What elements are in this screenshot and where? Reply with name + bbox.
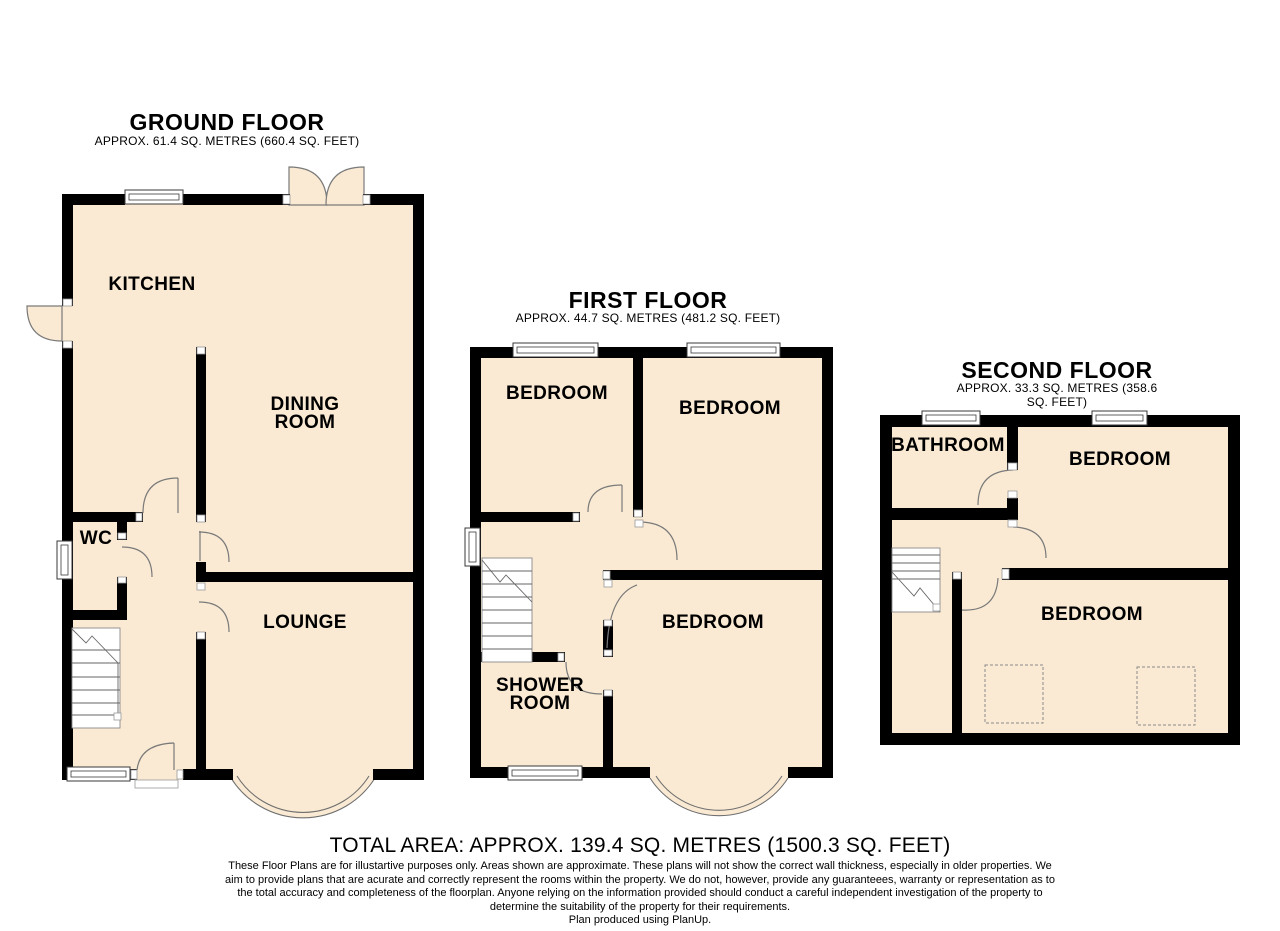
room-label-bedroom-4: BEDROOM xyxy=(1069,451,1171,469)
credit-text: Plan produced using PlanUp. xyxy=(140,914,1140,928)
disclaimer-line-3: the total accuracy and completeness of t… xyxy=(140,887,1140,901)
room-label-wc: WC xyxy=(80,530,112,548)
room-label-bathroom: BATHROOM xyxy=(891,437,1005,455)
room-label-kitchen: KITCHEN xyxy=(108,276,195,294)
room-label-dining-room: DINING ROOM xyxy=(271,396,340,432)
room-label-bedroom-1: BEDROOM xyxy=(506,385,608,403)
room-label-lounge: LOUNGE xyxy=(263,614,347,632)
room-label-bedroom-2: BEDROOM xyxy=(679,400,781,418)
disclaimer-line-2: aim to provide plans that are acurate an… xyxy=(140,874,1140,888)
disclaimer-line-1: These Floor Plans are for illustartive p… xyxy=(140,860,1140,874)
disclaimer-text: These Floor Plans are for illustartive p… xyxy=(140,860,1140,928)
first-floor-title: FIRST FLOOR xyxy=(569,287,728,314)
disclaimer-line-4: determine the suitability of the propert… xyxy=(140,901,1140,915)
ground-floor-title: GROUND FLOOR xyxy=(129,109,324,136)
second-floor-title: SECOND FLOOR xyxy=(961,357,1152,384)
room-label-bedroom-3: BEDROOM xyxy=(662,614,764,632)
ground-floor-plan xyxy=(27,167,424,818)
second-floor-area: APPROX. 33.3 SQ. METRES (358.6 SQ. FEET) xyxy=(946,381,1169,409)
first-floor-area: APPROX. 44.7 SQ. METRES (481.2 SQ. FEET) xyxy=(516,311,781,325)
total-area-text: TOTAL AREA: APPROX. 139.4 SQ. METRES (15… xyxy=(330,834,951,858)
room-label-shower-room: SHOWER ROOM xyxy=(496,677,584,713)
room-label-bedroom-5: BEDROOM xyxy=(1041,606,1143,624)
floorplan-canvas: GROUND FLOOR APPROX. 61.4 SQ. METRES (66… xyxy=(0,0,1280,931)
ground-floor-area: APPROX. 61.4 SQ. METRES (660.4 SQ. FEET) xyxy=(95,134,360,148)
second-floor-plan xyxy=(880,411,1240,745)
